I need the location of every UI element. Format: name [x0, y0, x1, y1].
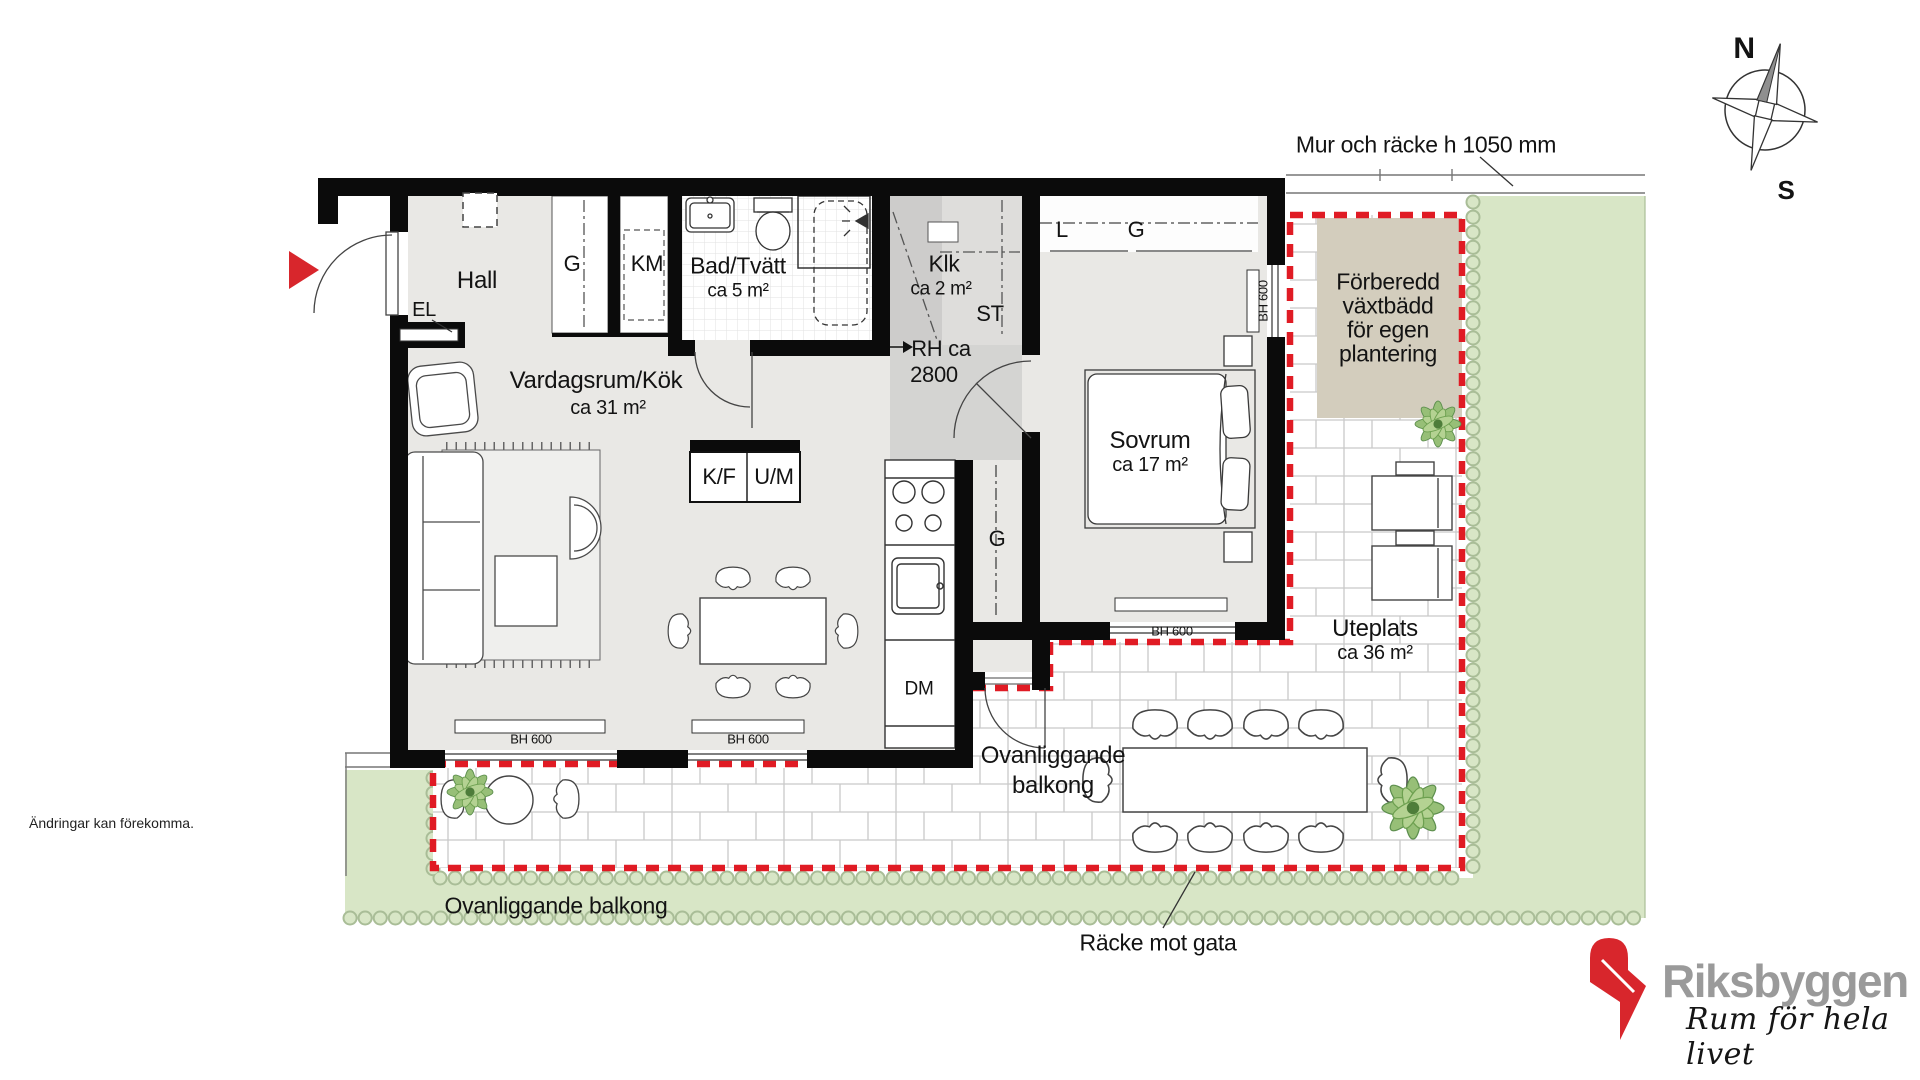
compass-icon	[1698, 32, 1832, 183]
ceiling-height-label-1: RH ca	[911, 338, 971, 360]
planting-label-1: Förberedd	[1336, 271, 1439, 294]
balcony-above-label-line2: balkong	[1012, 774, 1094, 798]
dishwasher-label: DM	[905, 680, 934, 699]
window-height-label-1: BH 600	[510, 733, 552, 746]
room-area-patio: ca 36 m²	[1337, 643, 1412, 663]
room-label-closet: Klk	[928, 253, 959, 276]
room-label-bath: Bad/Tvätt	[690, 255, 786, 278]
balcony-above-label-full: Ovanliggande balkong	[445, 895, 668, 918]
planting-label-4: plantering	[1339, 343, 1437, 366]
street-railing-label: Räcke mot gata	[1080, 932, 1237, 955]
floor-plan-canvas	[0, 0, 1920, 1080]
el-label: EL	[412, 300, 436, 320]
wardrobe-label-hall: G	[564, 253, 581, 275]
room-area-living: ca 31 m²	[570, 398, 645, 418]
window-height-label-3: BH 600	[1151, 625, 1193, 638]
oven-label: U/M	[754, 466, 793, 488]
riksbyggen-logo-icon	[1590, 938, 1646, 1040]
linen-label: L	[1056, 219, 1068, 241]
room-area-bath: ca 5 m²	[707, 282, 768, 301]
storage-label: ST	[976, 303, 1004, 325]
disclaimer-text: Ändringar kan förekomma.	[29, 815, 194, 831]
compass-north-label: N	[1733, 34, 1754, 64]
room-label-patio: Uteplats	[1332, 617, 1418, 641]
planting-label-2: växtbädd	[1343, 295, 1434, 318]
washer-label: KM	[631, 253, 663, 275]
wall-railing-label: Mur och räcke h 1050 mm	[1296, 134, 1556, 157]
wardrobe-label-bedroom: G	[1128, 219, 1145, 241]
room-area-bedroom: ca 17 m²	[1112, 455, 1187, 475]
window-height-label-2: BH 600	[727, 733, 769, 746]
fridge-label: K/F	[702, 466, 735, 488]
room-area-closet: ca 2 m²	[910, 280, 971, 299]
compass-south-label: S	[1777, 177, 1794, 203]
room-label-hall: Hall	[457, 269, 497, 293]
ceiling-hatch	[463, 193, 497, 227]
kitchen-counter	[885, 460, 955, 748]
entrance-arrow-icon	[289, 251, 319, 289]
planting-label-3: för egen	[1347, 319, 1429, 342]
floor-plan-page: Hall G KM EL Bad/Tvätt ca 5 m² Klk ca 2 …	[0, 0, 1920, 1080]
room-label-bedroom: Sovrum	[1110, 429, 1191, 453]
balcony-above-label-line1: Ovanliggande	[981, 744, 1126, 768]
wardrobe-label-corridor: G	[989, 528, 1006, 550]
brand-tagline: Rum för hela livet	[1686, 1002, 1920, 1072]
ceiling-height-label-2: 2800	[910, 364, 958, 386]
window-height-label-4: BH 600	[1257, 280, 1270, 322]
room-label-living: Vardagsrum/Kök	[510, 369, 683, 393]
brand-name: Riksbyggen	[1662, 954, 1908, 1008]
